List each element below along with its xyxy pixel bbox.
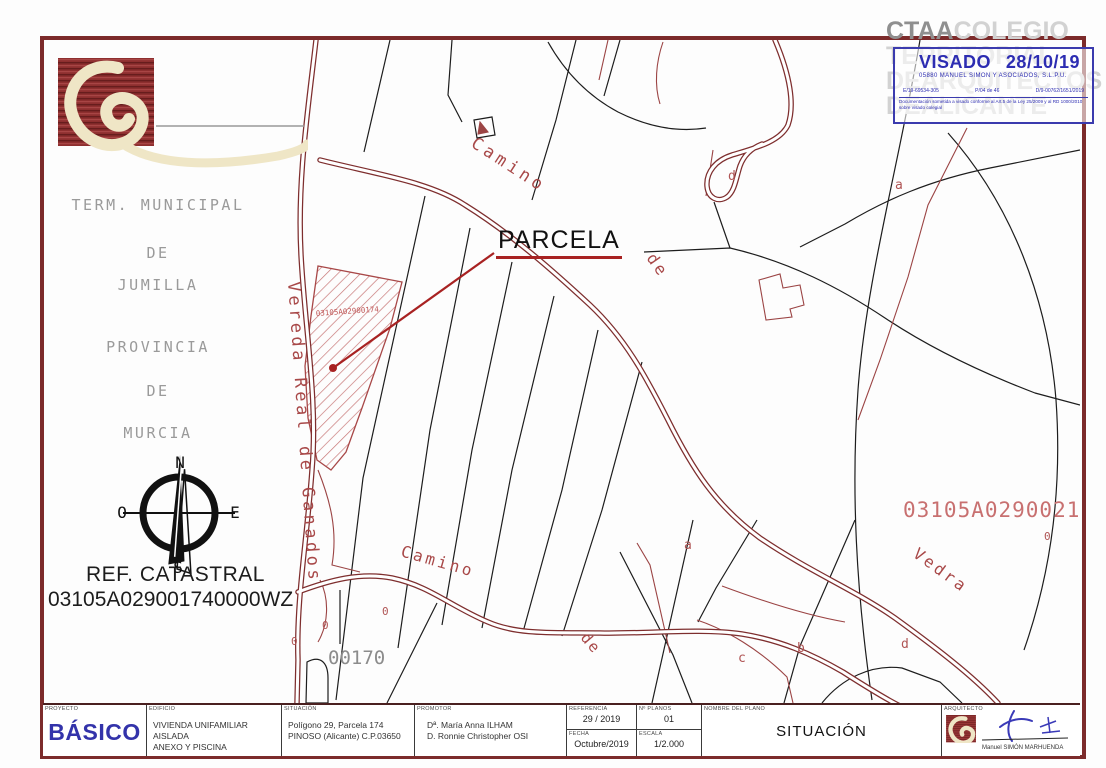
compass-rose: N S E O — [117, 453, 240, 577]
titleblock-cell-situacion: SITUACIÓN Polígono 29, Parcela 174 PINOS… — [281, 705, 414, 756]
promotor-line1: Dª. María Anna ILHAM — [427, 720, 528, 731]
zero-mark-2: 0 — [322, 619, 329, 632]
referencia-value: 29 / 2019 — [567, 714, 636, 724]
nombre-plano-header: NOMBRE DEL PLANO — [704, 706, 765, 712]
province-line2: DE — [58, 382, 258, 400]
road-label-vedra: Vedra — [910, 544, 972, 597]
edificio-line2: ANEXO Y PISCINA — [153, 742, 281, 753]
road-label-camino-lower: Camino — [399, 542, 477, 581]
titleblock-cell-arquitecto: ARQUITECTO Manuel SIMÓN MARHUENDA — [941, 705, 1080, 756]
zero-mark-4: 0 — [1044, 530, 1051, 543]
stamp-code-1: E/19-69534-305 — [903, 88, 939, 94]
compass-east-label: E — [230, 503, 240, 522]
architect-logo — [56, 56, 308, 168]
title-block: PROYECTO BÁSICO EDIFICIO VIVIENDA UNIFAM… — [43, 703, 1080, 756]
stamp-code-3: D/9-00762/1651/2019 — [1036, 88, 1084, 94]
titleblock-cell-nombre-plano: NOMBRE DEL PLANO SITUACIÓN — [701, 705, 941, 756]
logo-swoosh — [126, 144, 307, 163]
province-line1: PROVINCIA — [58, 338, 258, 356]
titleblock-cell-proyecto: PROYECTO BÁSICO — [43, 705, 146, 756]
parcela-callout-label: PARCELA — [496, 226, 622, 259]
subparcel-letter-d1: d — [901, 637, 909, 652]
num-planos-header: Nº PLANOS — [639, 706, 672, 712]
escala-header: ESCALA — [639, 731, 663, 737]
parcel-number-00170: 00170 — [328, 647, 385, 669]
proyecto-header: PROYECTO — [45, 706, 78, 712]
visado-label: VISADO — [919, 52, 991, 73]
titleblock-cell-promotor: PROMOTOR Dª. María Anna ILHAM D. Ronnie … — [414, 705, 566, 756]
titleblock-cell-planos-escala: Nº PLANOS 01 ESCALA 1/2.000 — [636, 705, 701, 756]
edificio-line1: VIVIENDA UNIFAMILIAR AISLADA — [153, 720, 281, 742]
zero-mark-1: 0 — [291, 635, 298, 648]
subparcel-letter-a2: a — [895, 178, 903, 193]
stamp-disclaimer: Documentación sometida a visado conforme… — [899, 97, 1088, 110]
referencia-header: REFERENCIA — [569, 706, 607, 712]
compass-north-label: N — [175, 453, 185, 472]
parcel-boundaries-layer — [306, 40, 1080, 703]
stamp-code-2: P/04 de 46 — [975, 88, 999, 94]
nombre-plano-value: SITUACIÓN — [702, 723, 941, 740]
subparcel-letter-b: b — [797, 641, 805, 656]
stamp-subtitle: 05880 MANUEL SIMON Y ASOCIADOS, S.L.P.U. — [895, 73, 1092, 79]
situacion-line1: Polígono 29, Parcela 174 — [288, 720, 401, 731]
visado-stamp: VISADO 28/10/19 05880 MANUEL SIMON Y ASO… — [893, 47, 1094, 124]
arquitecto-signature — [980, 709, 1072, 745]
fecha-header: FECHA — [569, 731, 589, 737]
visado-date: 28/10/19 — [1006, 52, 1080, 73]
titleblock-cell-referencia-fecha: REFERENCIA 29 / 2019 FECHA Octubre/2019 — [566, 705, 636, 756]
subparcel-letter-d2: d — [728, 169, 736, 184]
proyecto-value: BÁSICO — [43, 719, 146, 746]
promotor-header: PROMOTOR — [417, 706, 452, 712]
arquitecto-nombre: Manuel SIMÓN MARHUENDA — [982, 745, 1063, 751]
arquitecto-logo-small — [946, 715, 976, 743]
subparcel-letter-c: c — [738, 651, 746, 666]
map-labels-layer: Vereda Real de Ganados Camino de Camino … — [283, 133, 1094, 669]
situacion-line2: PINOSO (Alicante) C.P.03650 — [288, 731, 401, 742]
road-label-de-upper: de — [643, 249, 673, 281]
subparcel-letter-a1: a — [684, 538, 692, 553]
fecha-value: Octubre/2019 — [567, 739, 636, 749]
parcela-leader-dot — [329, 364, 337, 372]
parcel-code-large: 03105A02900217 — [903, 498, 1094, 522]
promotor-line2: D. Ronnie Christopher OSI — [427, 731, 528, 742]
municipality-line2: DE — [58, 244, 258, 262]
ref-catastral-value: 03105A029001740000WZ — [48, 588, 293, 612]
situacion-header: SITUACIÓN — [284, 706, 317, 712]
num-planos-value: 01 — [637, 714, 701, 724]
municipality-line1: TERM. MUNICIPAL — [58, 196, 258, 214]
zero-mark-3: 0 — [382, 605, 389, 618]
escala-value: 1/2.000 — [637, 739, 701, 749]
cadastral-plan-sheet: { "location_block": { "line1": "TERM. MU… — [0, 0, 1106, 768]
edificio-header: EDIFICIO — [149, 706, 175, 712]
ref-catastral-label: REF. CATASTRAL — [86, 563, 265, 587]
province-line3: MURCIA — [58, 424, 258, 442]
municipality-line3: JUMILLA — [58, 276, 258, 294]
compass-west-label: O — [117, 503, 127, 522]
titleblock-cell-edificio: EDIFICIO VIVIENDA UNIFAMILIAR AISLADA AN… — [146, 705, 281, 756]
arquitecto-header: ARQUITECTO — [944, 706, 983, 712]
road-label-camino-upper: Camino — [467, 133, 550, 196]
